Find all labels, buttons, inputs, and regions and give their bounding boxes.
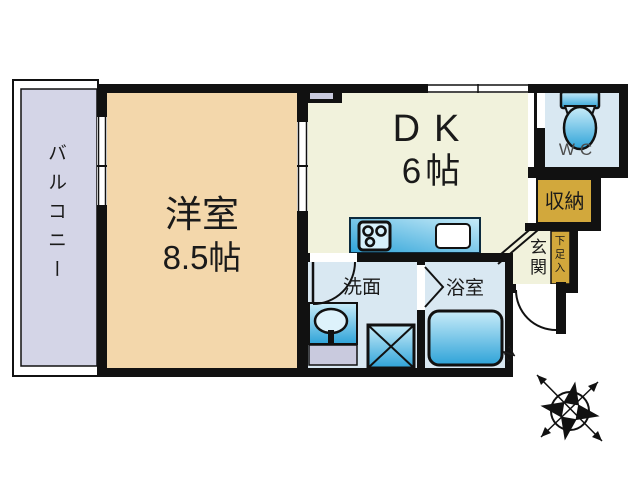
window-left — [97, 117, 107, 205]
stove-icon — [359, 222, 390, 250]
dk-pillar-cap — [310, 93, 333, 99]
washroom-label: 洗面 — [332, 278, 392, 297]
bathroom-label: 浴室 — [435, 279, 495, 298]
washing-machine-icon — [368, 325, 414, 368]
opening-bathroom — [417, 265, 425, 310]
western-room-size: 8.5帖 — [112, 241, 292, 274]
compass-rose-icon — [535, 375, 605, 446]
western-room-label: 洋室 — [112, 196, 292, 233]
shoe-cabinet-label: 下足入 — [554, 235, 565, 276]
entrance-door-arc — [516, 290, 556, 330]
washbasin-icon — [309, 303, 357, 344]
opening-washroom — [310, 253, 357, 262]
balcony-label: バルコニー — [46, 143, 65, 288]
dk-label: DK — [350, 110, 516, 148]
dk-size: 6帖 — [350, 154, 516, 189]
window-dk-top — [428, 84, 528, 93]
washer-pan — [309, 345, 357, 365]
kitchen-counter — [350, 218, 480, 253]
entrance-label: 玄関 — [528, 238, 545, 278]
sink-icon — [436, 224, 470, 248]
opening-entrance — [516, 284, 556, 293]
storage-label: 収納 — [537, 192, 592, 212]
opening-western-dk — [297, 122, 308, 211]
wc-label: WC — [549, 141, 607, 158]
bathtub-icon — [429, 311, 502, 365]
floor-plan: バルコニー 洋室 8.5帖 DK 6帖 WC 収納 玄関 下足入 洗面 浴室 N — [0, 0, 640, 480]
